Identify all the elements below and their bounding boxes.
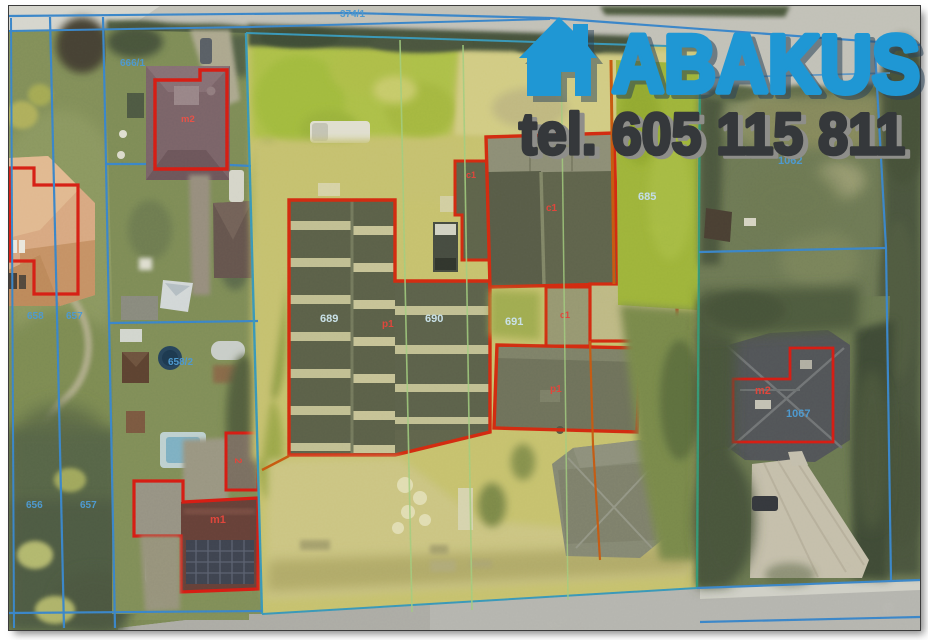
svg-text:ABAKUS: ABAKUS — [612, 19, 920, 110]
svg-text:tel. 605 115 811: tel. 605 115 811 — [519, 102, 905, 167]
